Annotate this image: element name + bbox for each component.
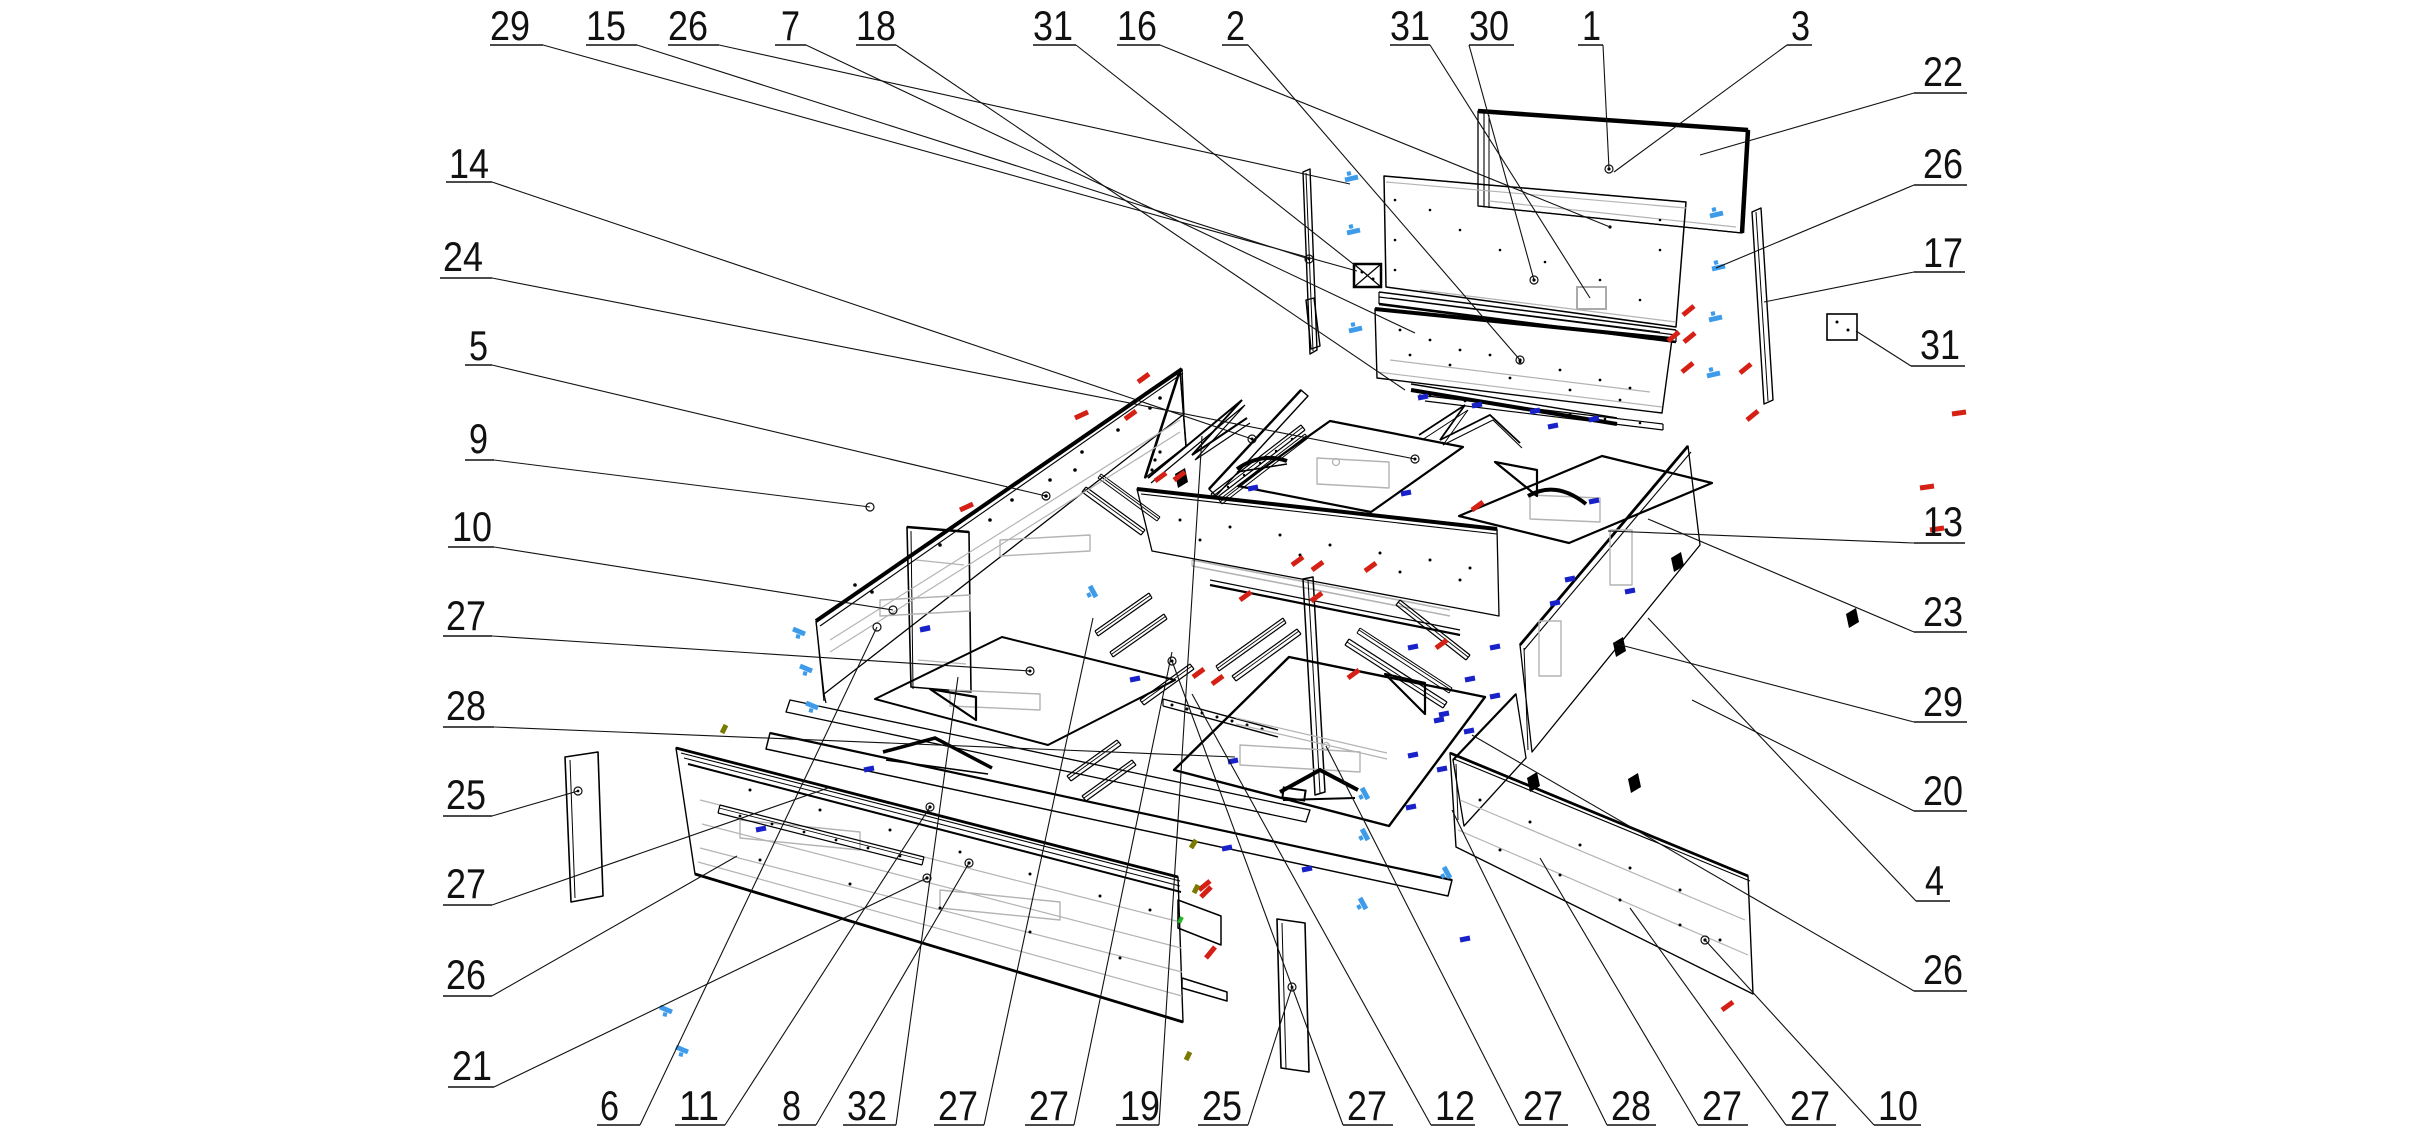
svg-text:23: 23 bbox=[1923, 588, 1963, 635]
svg-text:20: 20 bbox=[1923, 767, 1963, 814]
svg-text:28: 28 bbox=[1611, 1082, 1651, 1129]
svg-text:9: 9 bbox=[469, 415, 488, 462]
svg-text:26: 26 bbox=[1923, 946, 1963, 993]
svg-text:18: 18 bbox=[856, 2, 896, 49]
svg-text:27: 27 bbox=[1029, 1082, 1069, 1129]
svg-text:16: 16 bbox=[1117, 2, 1157, 49]
svg-text:24: 24 bbox=[443, 233, 483, 280]
svg-text:8: 8 bbox=[782, 1082, 801, 1129]
svg-text:27: 27 bbox=[1702, 1082, 1742, 1129]
svg-text:27: 27 bbox=[446, 860, 486, 907]
svg-text:30: 30 bbox=[1469, 2, 1509, 49]
svg-text:25: 25 bbox=[1202, 1082, 1242, 1129]
svg-text:21: 21 bbox=[452, 1042, 492, 1089]
svg-text:5: 5 bbox=[469, 322, 488, 369]
svg-text:6: 6 bbox=[600, 1082, 619, 1129]
svg-text:12: 12 bbox=[1435, 1082, 1475, 1129]
svg-text:31: 31 bbox=[1390, 2, 1430, 49]
svg-text:14: 14 bbox=[449, 140, 489, 187]
svg-text:31: 31 bbox=[1033, 2, 1073, 49]
svg-text:26: 26 bbox=[1923, 140, 1963, 187]
svg-text:31: 31 bbox=[1920, 321, 1960, 368]
svg-text:25: 25 bbox=[446, 771, 486, 818]
svg-text:7: 7 bbox=[781, 2, 800, 49]
svg-text:27: 27 bbox=[1347, 1082, 1387, 1129]
svg-text:27: 27 bbox=[446, 592, 486, 639]
svg-text:26: 26 bbox=[446, 951, 486, 998]
svg-text:29: 29 bbox=[490, 2, 530, 49]
svg-text:2: 2 bbox=[1226, 2, 1245, 49]
svg-text:17: 17 bbox=[1923, 229, 1963, 276]
svg-text:3: 3 bbox=[1791, 2, 1810, 49]
svg-text:15: 15 bbox=[586, 2, 626, 49]
svg-text:27: 27 bbox=[938, 1082, 978, 1129]
svg-text:1: 1 bbox=[1582, 2, 1601, 49]
svg-text:28: 28 bbox=[446, 682, 486, 729]
svg-text:26: 26 bbox=[668, 2, 708, 49]
svg-text:22: 22 bbox=[1923, 48, 1963, 95]
svg-text:19: 19 bbox=[1120, 1082, 1160, 1129]
svg-text:10: 10 bbox=[452, 503, 492, 550]
svg-text:27: 27 bbox=[1790, 1082, 1830, 1129]
svg-text:4: 4 bbox=[1925, 857, 1944, 904]
svg-text:11: 11 bbox=[679, 1082, 719, 1129]
svg-text:27: 27 bbox=[1523, 1082, 1563, 1129]
svg-text:29: 29 bbox=[1923, 678, 1963, 725]
svg-text:10: 10 bbox=[1878, 1082, 1918, 1129]
svg-text:32: 32 bbox=[847, 1082, 887, 1129]
svg-text:13: 13 bbox=[1923, 498, 1963, 545]
